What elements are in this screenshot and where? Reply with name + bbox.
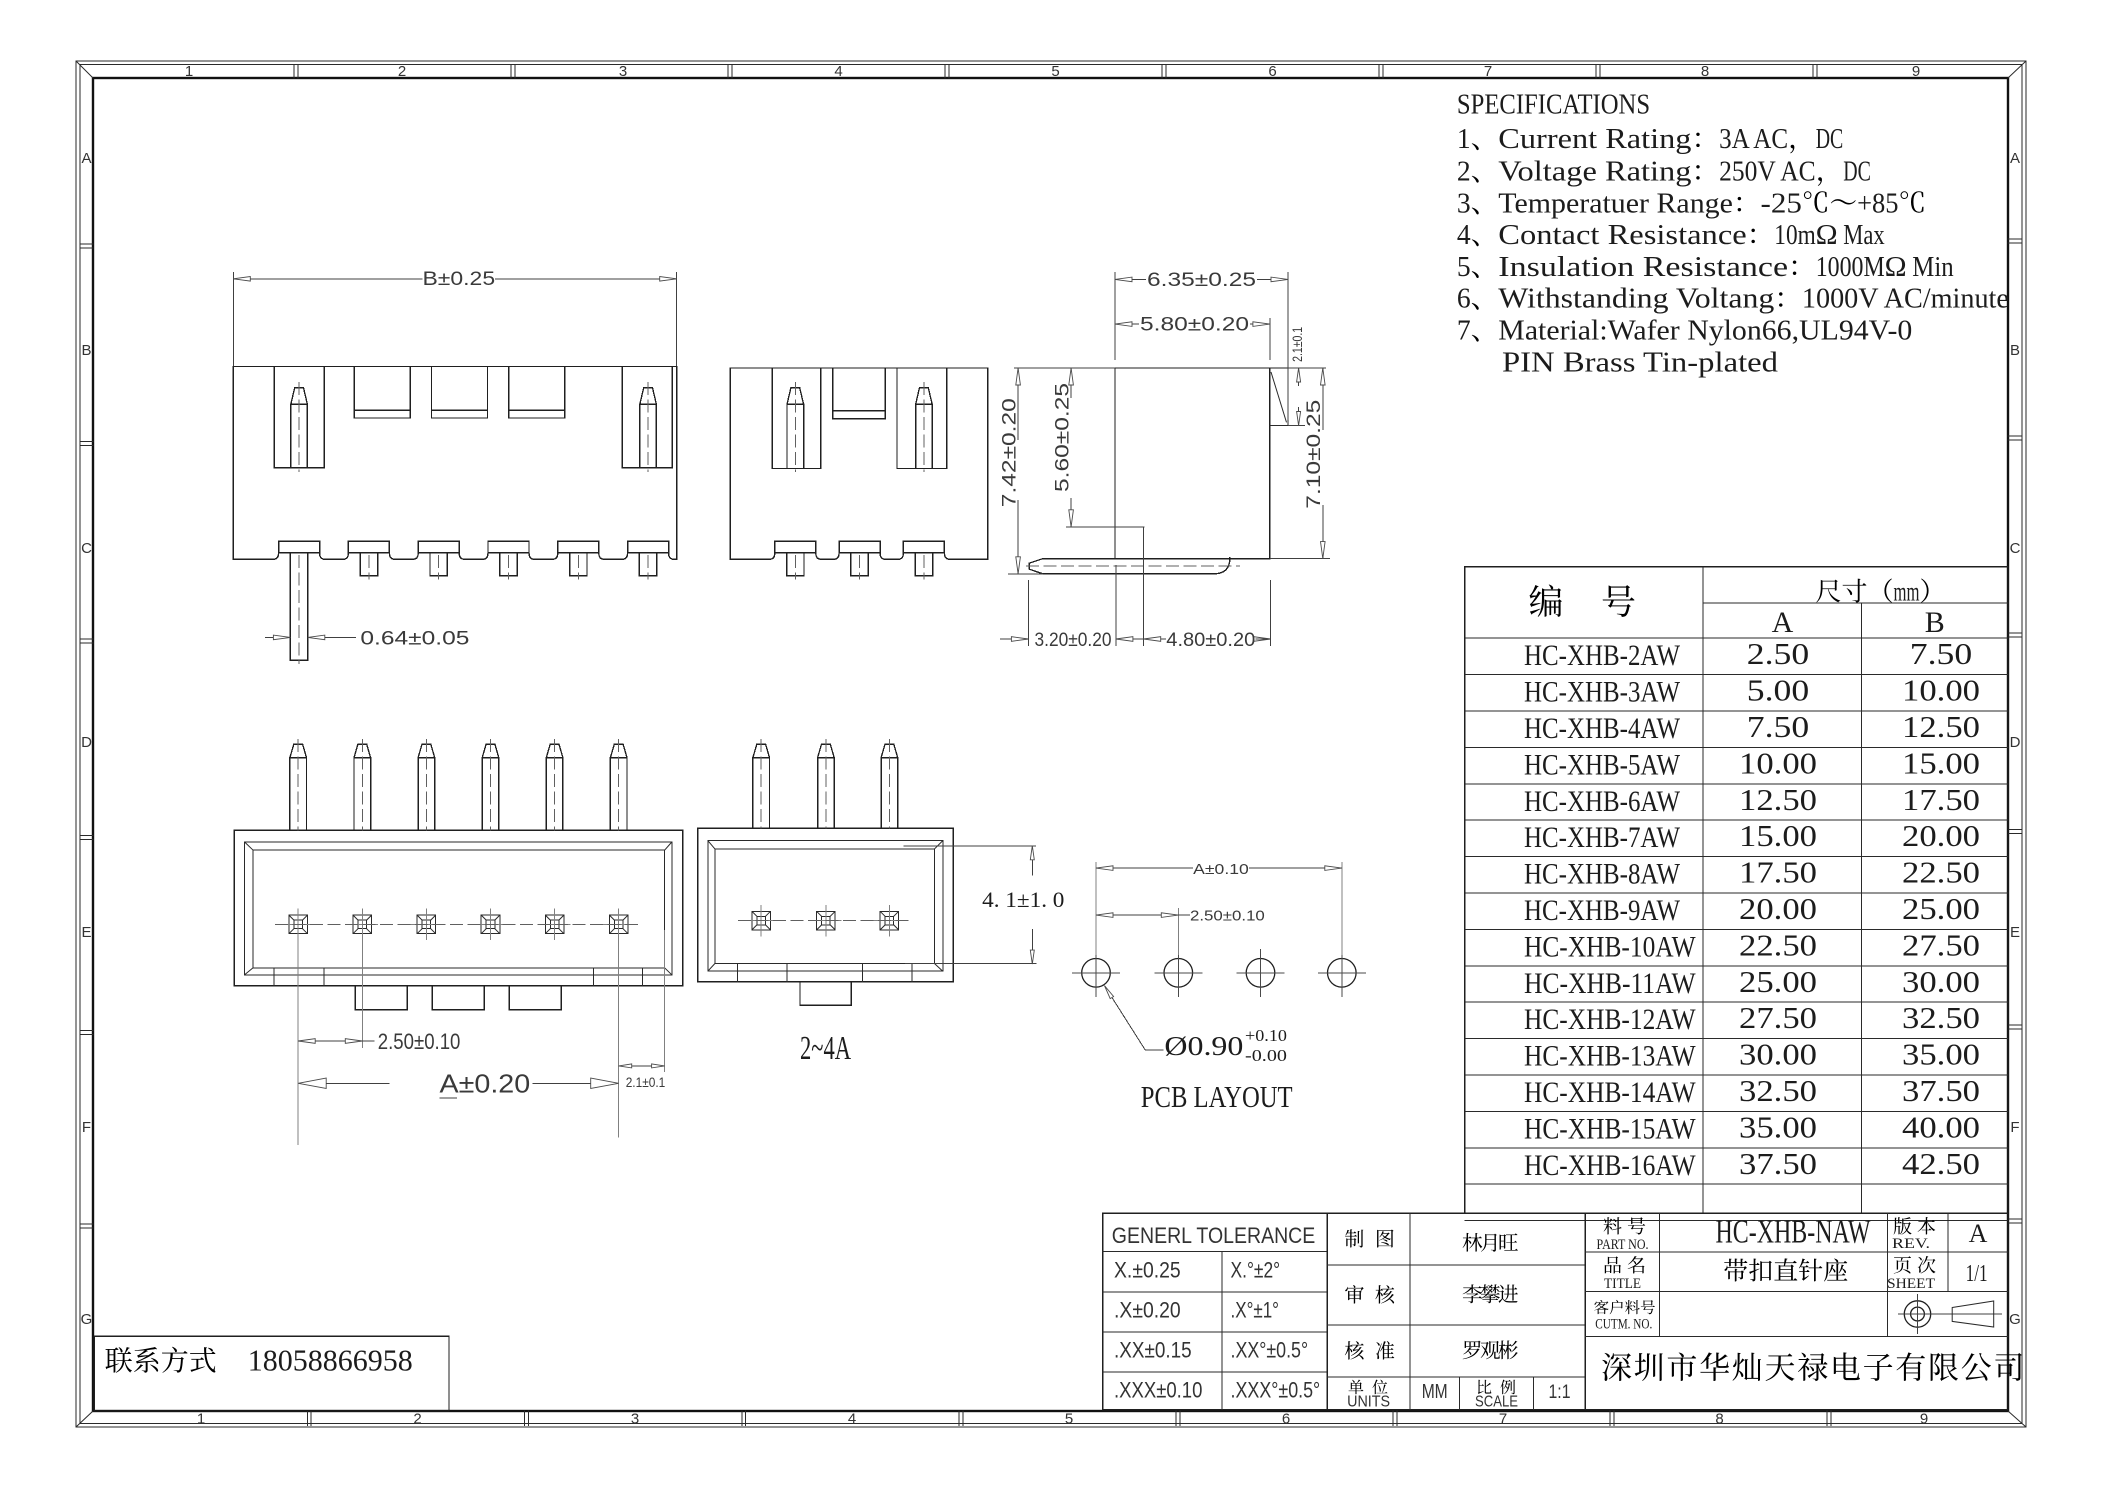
svg-text:HC-XHB-6AW: HC-XHB-6AW (1524, 785, 1681, 818)
svg-text:22.50: 22.50 (1902, 855, 1980, 890)
svg-text:35.00: 35.00 (1902, 1037, 1980, 1072)
svg-text:5.80±0.20: 5.80±0.20 (1140, 315, 1249, 336)
svg-text:4: 4 (834, 63, 842, 80)
svg-text:HC-XHB-11AW: HC-XHB-11AW (1524, 967, 1696, 1000)
svg-text:1: 1 (185, 63, 193, 80)
svg-text:40.00: 40.00 (1902, 1109, 1980, 1144)
svg-text:1: 1 (1457, 124, 1471, 155)
svg-text:7.50: 7.50 (1747, 709, 1809, 744)
svg-text:Temperatuer Range: Temperatuer Range (1498, 188, 1733, 219)
svg-text:25.00: 25.00 (1902, 891, 1980, 926)
svg-text:GENERL TOLERANCE: GENERL TOLERANCE (1112, 1223, 1316, 1248)
svg-text:8: 8 (1715, 1411, 1723, 1428)
svg-text:35.00: 35.00 (1739, 1109, 1817, 1144)
svg-text:27.50: 27.50 (1739, 1000, 1817, 1035)
svg-text:37.50: 37.50 (1902, 1073, 1980, 1108)
svg-text:HC-XHB-8AW: HC-XHB-8AW (1524, 858, 1681, 891)
svg-text:HC-XHB-9AW: HC-XHB-9AW (1524, 894, 1681, 927)
svg-text:4: 4 (848, 1411, 856, 1428)
svg-text:3: 3 (619, 63, 627, 80)
svg-text:A±0.20: A±0.20 (440, 1069, 531, 1099)
svg-text:B±0.25: B±0.25 (423, 269, 496, 290)
svg-text:X.°±2°: X.°±2° (1231, 1257, 1281, 1282)
svg-text:mm: mm (1894, 577, 1920, 607)
svg-text:TITLE: TITLE (1604, 1276, 1641, 1292)
svg-text:10.00: 10.00 (1739, 745, 1817, 780)
svg-text:HC-XHB-13AW: HC-XHB-13AW (1524, 1040, 1696, 1073)
svg-text:25.00: 25.00 (1739, 964, 1817, 999)
svg-text:PCB LAYOUT: PCB LAYOUT (1141, 1079, 1293, 1114)
svg-text:Ø0.90: Ø0.90 (1164, 1031, 1243, 1061)
svg-text:X.±0.25: X.±0.25 (1114, 1257, 1181, 1282)
svg-text:.X°±1°: .X°±1° (1231, 1297, 1280, 1322)
svg-text:B: B (1925, 606, 1945, 639)
svg-text:8: 8 (1701, 63, 1709, 80)
svg-text:15.00: 15.00 (1739, 818, 1817, 853)
svg-text:1000M: 1000M (1816, 252, 1885, 283)
svg-text:C: C (81, 540, 92, 557)
svg-text:3: 3 (631, 1411, 639, 1428)
svg-text:30.00: 30.00 (1902, 964, 1980, 999)
svg-text:9: 9 (1912, 63, 1920, 80)
svg-text:0.64±0.05: 0.64±0.05 (360, 629, 469, 650)
svg-text:DC: DC (1816, 124, 1844, 155)
svg-text:A: A (81, 150, 91, 167)
svg-text:REV.: REV. (1892, 1236, 1930, 1252)
svg-text:2: 2 (413, 1411, 421, 1428)
svg-text:HC-XHB-4AW: HC-XHB-4AW (1524, 712, 1681, 745)
svg-text:7: 7 (1457, 316, 1471, 347)
svg-text:MM: MM (1422, 1381, 1448, 1403)
svg-text:Ω: Ω (1816, 220, 1838, 251)
svg-text:F: F (82, 1119, 91, 1136)
svg-text:HC-XHB-3AW: HC-XHB-3AW (1524, 676, 1681, 709)
svg-text:-25: -25 (1761, 188, 1802, 219)
svg-text:2~4A: 2~4A (800, 1030, 851, 1067)
svg-text:HC-XHB-16AW: HC-XHB-16AW (1524, 1149, 1696, 1182)
svg-text:Insulation Resistance: Insulation Resistance (1498, 252, 1788, 283)
svg-text:20.00: 20.00 (1902, 818, 1980, 853)
svg-text:2: 2 (398, 63, 406, 80)
svg-text:Min: Min (1912, 252, 1953, 283)
svg-text:32.50: 32.50 (1739, 1073, 1817, 1108)
svg-text:.XX°±0.5°: .XX°±0.5° (1231, 1337, 1309, 1362)
svg-text:7.42±0.20: 7.42±0.20 (1000, 398, 1021, 507)
svg-text:A: A (1772, 606, 1794, 639)
svg-text:CUTM. NO.: CUTM. NO. (1595, 1317, 1652, 1333)
svg-text:HC-XHB-10AW: HC-XHB-10AW (1524, 930, 1696, 963)
svg-text:B: B (2010, 342, 2020, 359)
svg-text:12.50: 12.50 (1739, 782, 1817, 817)
svg-text:C: C (2010, 540, 2021, 557)
svg-text:.X±0.20: .X±0.20 (1114, 1297, 1181, 1322)
svg-text:2.50±0.10: 2.50±0.10 (1190, 908, 1265, 925)
svg-text:HC-XHB-5AW: HC-XHB-5AW (1524, 748, 1681, 781)
svg-text:5.60±0.25: 5.60±0.25 (1053, 383, 1074, 492)
svg-text:.XX±0.15: .XX±0.15 (1114, 1337, 1192, 1362)
svg-text:G: G (2009, 1311, 2021, 1328)
svg-text:3A AC: 3A AC (1719, 124, 1788, 155)
svg-text:E: E (81, 924, 91, 941)
svg-text:2.50: 2.50 (1747, 636, 1809, 671)
svg-text:250V AC: 250V AC (1719, 157, 1816, 188)
svg-text:.XXX°±0.5°: .XXX°±0.5° (1231, 1377, 1321, 1402)
svg-text:+85: +85 (1857, 188, 1898, 219)
svg-text:HC-XHB-12AW: HC-XHB-12AW (1524, 1003, 1696, 1036)
svg-text:Voltage Rating: Voltage Rating (1498, 157, 1691, 188)
svg-text:HC-XHB-NAW: HC-XHB-NAW (1716, 1214, 1872, 1251)
svg-text:30.00: 30.00 (1739, 1037, 1817, 1072)
svg-text:A: A (1969, 1219, 1988, 1248)
svg-text:Contact Resistance: Contact Resistance (1498, 220, 1746, 251)
svg-text:SCALE: SCALE (1475, 1394, 1518, 1411)
svg-text:7.50: 7.50 (1910, 636, 1972, 671)
svg-text:18058866958: 18058866958 (248, 1343, 413, 1378)
svg-text:2.1±0.1: 2.1±0.1 (1289, 327, 1305, 362)
svg-text:37.50: 37.50 (1739, 1146, 1817, 1181)
svg-text:-0.00: -0.00 (1245, 1046, 1287, 1065)
svg-text:Material:Wafer Nylon66,UL94V-0: Material:Wafer Nylon66,UL94V-0 (1498, 316, 1912, 347)
svg-text:+0.10: +0.10 (1245, 1026, 1287, 1045)
svg-text:UNITS: UNITS (1347, 1394, 1390, 1411)
svg-text:22.50: 22.50 (1739, 927, 1817, 962)
svg-text:4: 4 (1457, 220, 1471, 251)
svg-text:2.1±0.1: 2.1±0.1 (626, 1074, 666, 1090)
svg-text:5: 5 (1065, 1411, 1073, 1428)
svg-text:6.35±0.25: 6.35±0.25 (1147, 270, 1256, 291)
svg-text:SHEET: SHEET (1887, 1276, 1935, 1292)
svg-text:E: E (2010, 924, 2020, 941)
svg-text:F: F (2010, 1119, 2019, 1136)
svg-text:4. 1±1. 0: 4. 1±1. 0 (982, 887, 1064, 912)
svg-text:27.50: 27.50 (1902, 927, 1980, 962)
svg-text:17.50: 17.50 (1739, 855, 1817, 890)
svg-text:6: 6 (1268, 63, 1276, 80)
svg-text:3.20±0.20: 3.20±0.20 (1035, 630, 1112, 651)
svg-text:10m: 10m (1774, 220, 1816, 251)
svg-text:4.80±0.20: 4.80±0.20 (1166, 630, 1255, 651)
svg-text:HC-XHB-2AW: HC-XHB-2AW (1524, 639, 1681, 672)
svg-text:D: D (2010, 734, 2021, 751)
svg-text:2.50±0.10: 2.50±0.10 (378, 1029, 461, 1054)
svg-text:1/1: 1/1 (1966, 1261, 1988, 1287)
svg-text:HC-XHB-15AW: HC-XHB-15AW (1524, 1112, 1696, 1145)
svg-text:5: 5 (1457, 252, 1471, 283)
svg-text:3: 3 (1457, 188, 1471, 219)
svg-text:Ω: Ω (1885, 252, 1907, 283)
svg-text:.XXX±0.10: .XXX±0.10 (1114, 1377, 1202, 1402)
svg-text:7: 7 (1499, 1411, 1507, 1428)
svg-text:12.50: 12.50 (1902, 709, 1980, 744)
svg-text:15.00: 15.00 (1902, 745, 1980, 780)
svg-text:PIN Brass Tin-plated: PIN Brass Tin-plated (1502, 347, 1778, 378)
svg-text:Current Rating: Current Rating (1498, 124, 1691, 155)
svg-text:20.00: 20.00 (1739, 891, 1817, 926)
svg-text:Max: Max (1843, 220, 1884, 251)
svg-text:7: 7 (1484, 63, 1492, 80)
svg-text:Withstanding Voltang: Withstanding Voltang (1498, 284, 1774, 315)
svg-text:6: 6 (1282, 1411, 1290, 1428)
svg-text:A: A (2010, 150, 2020, 167)
svg-text:1000V AC/minute: 1000V AC/minute (1802, 284, 2009, 315)
svg-text:D: D (81, 734, 92, 751)
svg-text:42.50: 42.50 (1902, 1146, 1980, 1181)
svg-text:5: 5 (1051, 63, 1059, 80)
svg-text:17.50: 17.50 (1902, 782, 1980, 817)
svg-text:A±0.10: A±0.10 (1193, 861, 1249, 878)
svg-text:DC: DC (1843, 157, 1871, 188)
svg-text:HC-XHB-7AW: HC-XHB-7AW (1524, 821, 1681, 854)
svg-text:B: B (81, 342, 91, 359)
svg-text:7.10±0.25: 7.10±0.25 (1304, 400, 1325, 509)
svg-text:2: 2 (1457, 157, 1471, 188)
svg-text:6: 6 (1457, 284, 1471, 315)
svg-text:HC-XHB-14AW: HC-XHB-14AW (1524, 1076, 1696, 1109)
svg-text:1: 1 (197, 1411, 205, 1428)
svg-text:5.00: 5.00 (1747, 673, 1809, 708)
svg-text:10.00: 10.00 (1902, 673, 1980, 708)
svg-text:9: 9 (1920, 1411, 1928, 1428)
svg-text:32.50: 32.50 (1902, 1000, 1980, 1035)
svg-text:PART NO.: PART NO. (1597, 1237, 1649, 1253)
svg-text:1:1: 1:1 (1549, 1382, 1571, 1403)
svg-text:G: G (81, 1311, 93, 1328)
svg-text:SPECIFICATIONS: SPECIFICATIONS (1457, 90, 1650, 121)
